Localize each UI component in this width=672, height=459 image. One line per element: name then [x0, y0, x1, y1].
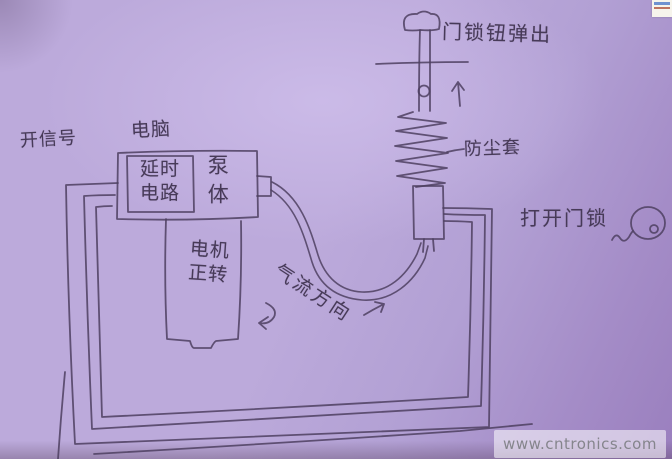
up-arrow — [452, 82, 464, 106]
label-motor-line1: 电机 — [189, 238, 230, 263]
label-delay-line2: 电路 — [140, 182, 180, 204]
label-motor-line2: 正转 — [187, 261, 228, 286]
key-teeth-squiggle — [612, 231, 633, 241]
label-computer: 电脑 — [130, 118, 171, 144]
lock-knob-head — [404, 12, 440, 31]
door-outline-inner — [96, 206, 472, 417]
motor-rotation-arrow — [259, 303, 275, 329]
label-pump-body: 泵体 — [204, 154, 230, 212]
rod-detail-circle — [419, 86, 430, 97]
watermark-text: www.cntronics.com — [503, 435, 657, 453]
dust-cover-pointer-dash — [447, 149, 464, 152]
actuator-cylinder — [413, 186, 444, 239]
door-outline-middle — [84, 195, 485, 429]
label-delay-circuit: 延时 电路 — [126, 158, 194, 206]
label-motor-forward: 电机 正转 — [178, 237, 239, 288]
door-top-sill-line — [376, 62, 468, 64]
label-dust-cover: 防尘套 — [464, 137, 522, 161]
key-doodle — [612, 207, 665, 241]
lock-actuator — [395, 12, 464, 253]
door-stray-left-stroke — [58, 372, 65, 459]
lock-rod — [419, 30, 430, 111]
key-hole — [650, 225, 658, 233]
bellows-dust-boot — [395, 112, 448, 187]
fragment-line-red — [654, 7, 670, 9]
key-head — [631, 207, 665, 239]
label-lock-knob-pop: 门锁钮弹出 — [442, 20, 553, 48]
label-delay-line1: 延时 — [140, 158, 180, 180]
label-open-signal: 开信号 — [19, 128, 77, 153]
watermark-badge: www.cntronics.com — [494, 430, 666, 458]
label-open-door-lock: 打开门锁 — [520, 206, 608, 231]
door-outline-outer — [66, 183, 492, 444]
fragment-line-blue — [654, 2, 670, 5]
pump-outlet-nub — [257, 176, 271, 196]
corner-screenshot-fragment — [652, 0, 672, 17]
airflow-arrow — [364, 302, 384, 315]
door-panel-lines — [58, 62, 532, 459]
